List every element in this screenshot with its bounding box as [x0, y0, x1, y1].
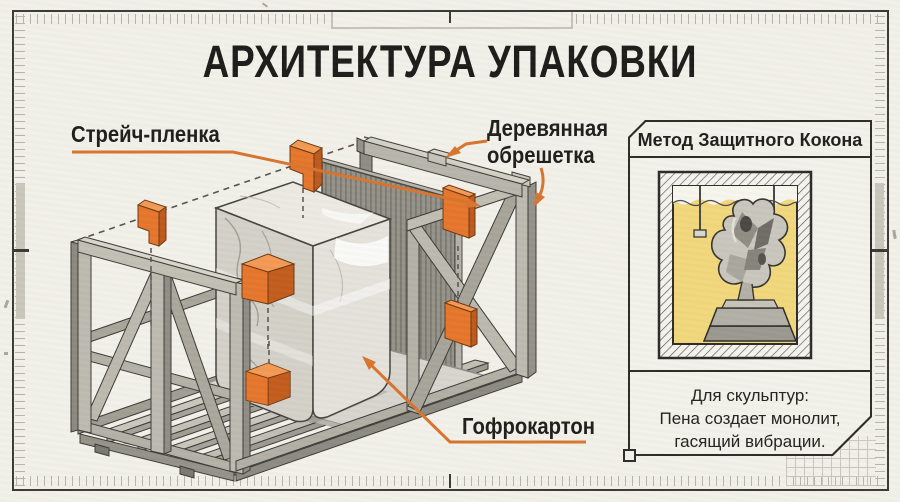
- label-wooden-crate: Деревянная обрешетка: [487, 115, 608, 169]
- label-stretch-film: Стрейч-пленка: [71, 121, 220, 148]
- label-cardboard: Гофрокартон: [462, 413, 595, 440]
- label-wooden-crate-line1: Деревянная: [487, 115, 608, 142]
- poster: АРХИТЕКТУРА УПАКОВКИ: [0, 0, 900, 502]
- corner-protector: [443, 185, 475, 238]
- cocoon-illustration: [630, 158, 870, 370]
- corner-protector: [445, 300, 477, 347]
- corner-protector: [246, 363, 290, 406]
- cocoon-svg: [630, 158, 870, 370]
- caption-line: Пена создает монолит,: [630, 407, 870, 430]
- label-wooden-crate-line2: обрешетка: [487, 142, 608, 169]
- caption-line: гасящий вибрации.: [630, 430, 870, 453]
- corner-protector: [138, 200, 166, 246]
- rod-clamp: [694, 230, 706, 237]
- panel-corner-marker: [623, 449, 636, 462]
- corner-protector: [242, 254, 294, 304]
- info-panel-header: Метод Защитного Кокона: [630, 122, 870, 158]
- info-panel-caption: Для скульптур: Пена создает монолит, гас…: [630, 370, 870, 453]
- caption-line: Для скульптур:: [630, 384, 870, 407]
- info-panel: Метод Защитного Кокона: [628, 120, 872, 456]
- info-panel-body: Метод Защитного Кокона: [630, 122, 870, 454]
